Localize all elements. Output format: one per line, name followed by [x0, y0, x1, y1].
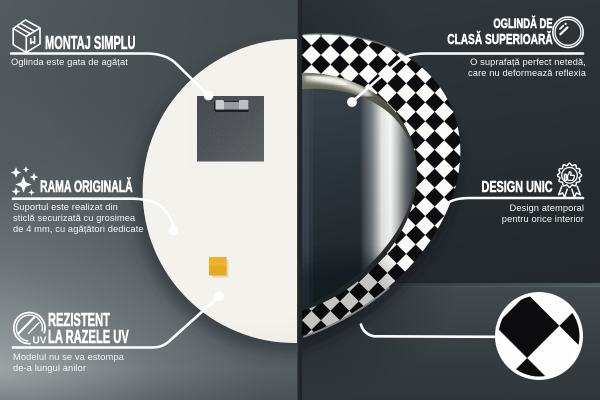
svg-text:UV: UV [33, 336, 47, 347]
